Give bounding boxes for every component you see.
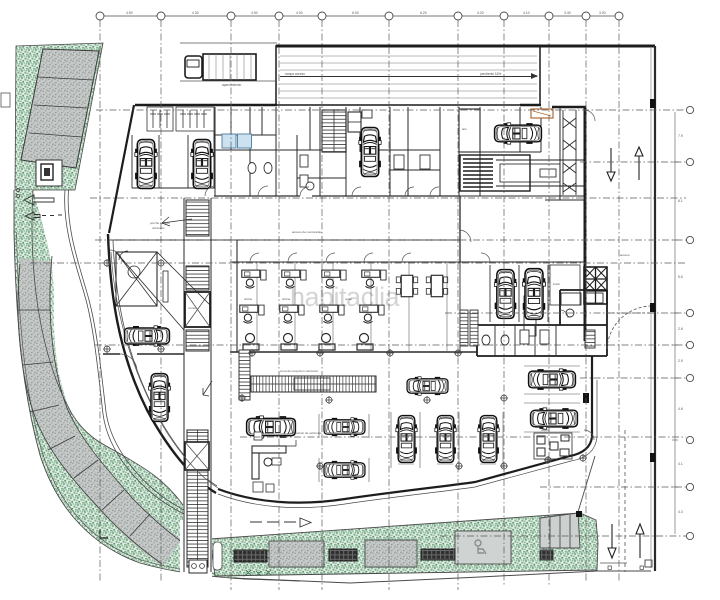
- svg-text:3.40: 3.40: [564, 11, 571, 15]
- svg-text:acceso: acceso: [620, 253, 630, 257]
- svg-text:6.00: 6.00: [352, 11, 359, 15]
- svg-text:2.6: 2.6: [678, 327, 683, 331]
- svg-text:7.9: 7.9: [678, 134, 683, 138]
- svg-text:5.6: 5.6: [678, 275, 683, 279]
- svg-text:4.30: 4.30: [192, 11, 199, 15]
- svg-text:6.20: 6.20: [420, 11, 427, 15]
- svg-text:exposicion de vehiculos: exposicion de vehiculos: [290, 431, 322, 435]
- svg-text:rampa acceso: rampa acceso: [285, 72, 305, 76]
- svg-text:4.20: 4.20: [477, 11, 484, 15]
- svg-text:4.00: 4.00: [296, 11, 303, 15]
- svg-text:4.10: 4.10: [523, 11, 530, 15]
- svg-text:recep: recep: [345, 297, 352, 301]
- svg-text:alm: alm: [462, 127, 467, 131]
- svg-text:acceso de mercancias: acceso de mercancias: [292, 230, 322, 234]
- svg-text:4.50: 4.50: [251, 11, 258, 15]
- svg-text:aparcamiento: aparcamiento: [222, 83, 242, 87]
- svg-text:vehiculos: vehiculos: [152, 226, 165, 230]
- svg-text:2.9: 2.9: [678, 359, 683, 363]
- svg-text:4.1: 4.1: [678, 462, 683, 466]
- svg-text:3.00: 3.00: [599, 11, 606, 15]
- svg-text:zona de recepcion vehiculos: zona de recepcion vehiculos: [280, 369, 318, 373]
- svg-text:4.50: 4.50: [126, 11, 133, 15]
- svg-text:oficina: oficina: [244, 297, 253, 301]
- svg-text:pendiente 16%: pendiente 16%: [480, 72, 501, 76]
- svg-text:4.6: 4.6: [678, 407, 683, 411]
- svg-text:monta: monta: [188, 306, 196, 310]
- svg-text:6.1: 6.1: [678, 199, 683, 203]
- svg-text:instal: instal: [553, 282, 560, 286]
- svg-text:oficina: oficina: [282, 297, 291, 301]
- svg-text:espera: espera: [541, 428, 550, 432]
- svg-text:4.3: 4.3: [678, 510, 683, 514]
